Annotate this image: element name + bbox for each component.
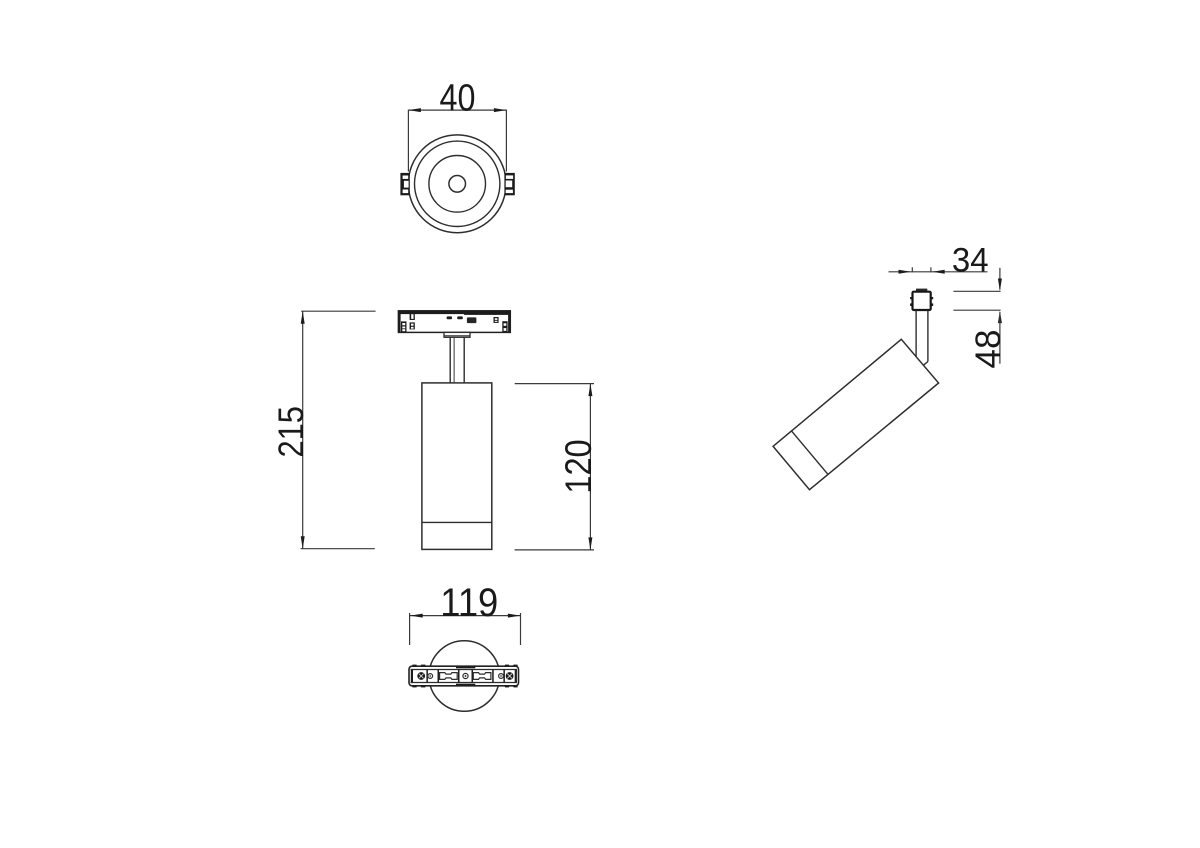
svg-text:48: 48: [969, 330, 1008, 369]
svg-text:215: 215: [271, 406, 310, 457]
svg-text:119: 119: [440, 580, 498, 625]
svg-text:34: 34: [952, 242, 989, 280]
svg-text:40: 40: [440, 77, 476, 119]
svg-text:120: 120: [558, 439, 599, 493]
